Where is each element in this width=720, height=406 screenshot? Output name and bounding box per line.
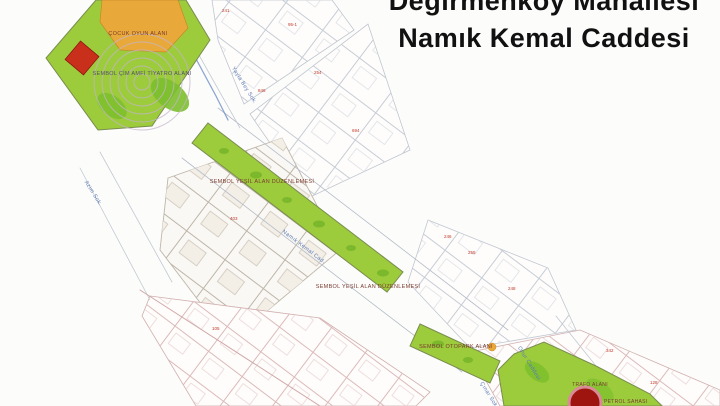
- parcel-block-bottom-left: [142, 296, 430, 406]
- strip-label-lower: SEMBOL YEŞİL ALAN DÜZENLEMESİ: [316, 283, 421, 290]
- street-edge: [100, 152, 172, 282]
- parcel-block-right-of-strip: [408, 220, 576, 348]
- parcel-number: 128: [650, 380, 658, 385]
- facility-petrol-label: PETROL SAHASI: [604, 399, 647, 405]
- parcel-number: 241: [222, 8, 230, 13]
- screenshot-root: ÇOCUK OYUN ALANI SEMBOL ÇİM AMFİ TİYATRO…: [0, 0, 720, 406]
- parcel-number: 246: [444, 234, 452, 239]
- parcel-number: 342: [606, 348, 614, 353]
- strip-label-end: SEMBOL OTOPARK ALANI: [419, 344, 493, 350]
- street-label: Azim Sok.: [83, 180, 103, 207]
- playground-label: ÇOCUK OYUN ALANI: [108, 31, 167, 37]
- parcel-number: 254: [314, 70, 322, 75]
- map-title-line1: Değirmenköy Mahallesi: [372, 0, 716, 17]
- parcel-number: 105: [212, 326, 220, 331]
- parcel-number: 248: [508, 286, 516, 291]
- amphitheater-label: SEMBOL ÇİM AMFİ TİYATRO ALANI: [93, 70, 192, 77]
- strip-label-upper: SEMBOL YEŞİL ALAN DÜZENLEMESİ: [210, 178, 315, 185]
- parcel-number: 846: [258, 88, 266, 93]
- parcel-number: 95-1: [288, 22, 298, 27]
- parcel-number: 694: [352, 128, 360, 133]
- parcel-number: 255: [468, 250, 476, 255]
- map-title-line2: Namık Kemal Caddesi: [372, 23, 716, 54]
- site-plan-map: ÇOCUK OYUN ALANI SEMBOL ÇİM AMFİ TİYATRO…: [0, 0, 720, 406]
- park-area: ÇOCUK OYUN ALANI SEMBOL ÇİM AMFİ TİYATRO…: [46, 0, 210, 130]
- parcel-number: 403: [230, 216, 238, 221]
- facility-red-circle: [569, 387, 601, 406]
- facility-trafo-label: TRAFO ALANI: [572, 382, 608, 388]
